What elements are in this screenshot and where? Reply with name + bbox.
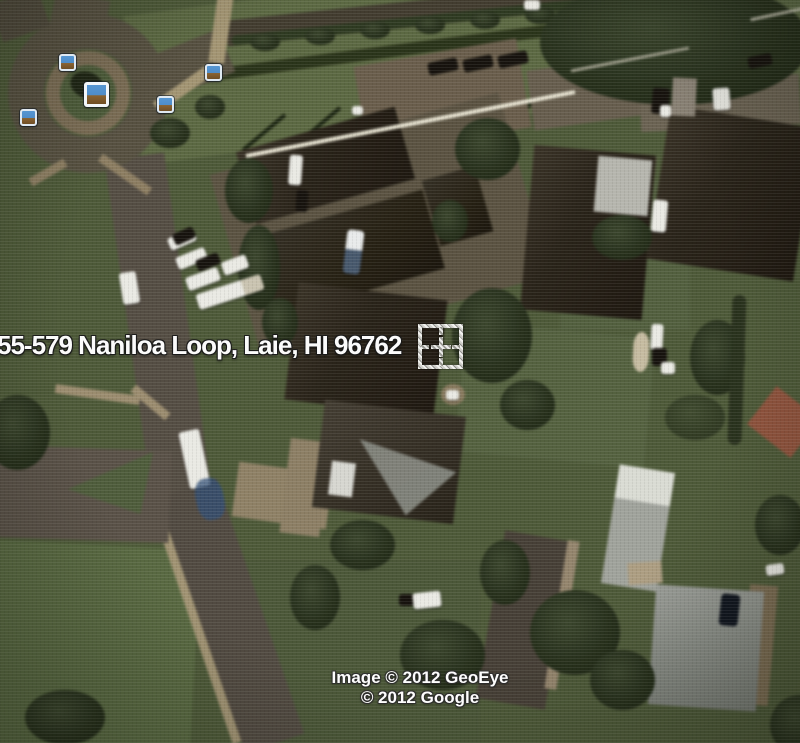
- address-label: 55-579 Naniloa Loop, Laie, HI 96762: [0, 330, 401, 361]
- crosshair-tick: [439, 327, 443, 335]
- photo-marker[interactable]: [205, 64, 222, 81]
- crosshair-tick: [439, 358, 443, 366]
- map-viewport[interactable]: 55-579 Naniloa Loop, Laie, HI 96762 Imag…: [0, 0, 800, 743]
- photo-marker[interactable]: [157, 96, 174, 113]
- photo-marker-selected[interactable]: [84, 82, 109, 107]
- attribution-line-2: © 2012 Google: [332, 688, 509, 708]
- crosshair-tick: [452, 345, 460, 349]
- crosshair-plus-icon: [439, 337, 443, 357]
- attribution-line-1: Image © 2012 GeoEye: [332, 668, 509, 688]
- photo-marker[interactable]: [20, 109, 37, 126]
- crosshair-tick: [421, 345, 429, 349]
- attribution: Image © 2012 GeoEye © 2012 Google: [332, 668, 509, 708]
- photo-marker[interactable]: [59, 54, 76, 71]
- map-overlay: 55-579 Naniloa Loop, Laie, HI 96762 Imag…: [0, 0, 800, 743]
- placemark-crosshair[interactable]: [418, 324, 463, 369]
